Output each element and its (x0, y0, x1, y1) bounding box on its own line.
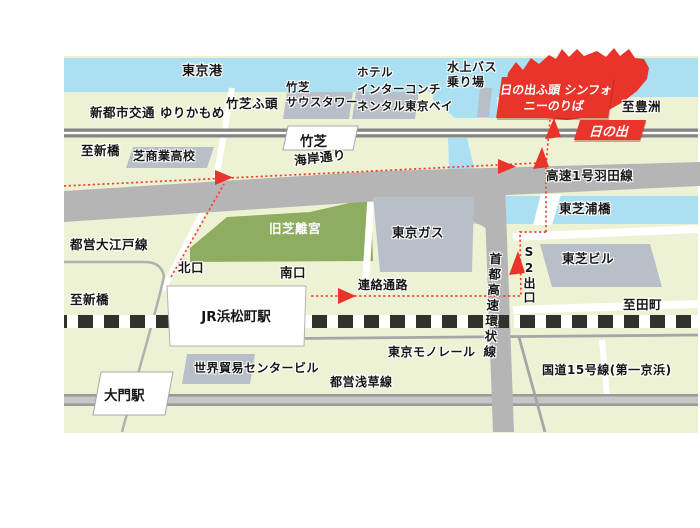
north-exit-label: 北口 (178, 260, 204, 275)
to-shimbashi-south-label: 至新橋 (70, 292, 109, 307)
jr-railway (64, 315, 698, 328)
tokyo-gas-label: 東京ガス (392, 225, 444, 240)
tokyo-bay-label: 東京港 (182, 64, 223, 79)
route15-label: 国道15号線(第一京浜) (542, 363, 672, 378)
shibaura-bridge-label: 東芝浦橋 (559, 201, 611, 216)
water-bus-stop-label: 水上バス 乗り場 (447, 60, 497, 90)
world-trade-center-label: 世界貿易センタービル (194, 361, 319, 376)
haneda-expressway-label: 高速1号羽田線 (546, 168, 633, 183)
to-shimbashi-north-label: 至新橋 (81, 143, 120, 158)
takeshiba-south-tower-label: 竹芝 サウスタワー (286, 80, 358, 110)
toshiba-building-label: 東芝ビル (562, 251, 614, 266)
shiba-commercial-hs-label: 芝商業高校 (133, 149, 196, 164)
takeshiba-station-label: 竹芝 (300, 130, 327, 150)
yurikamome-label: 新都市交通 ゆりかもめ (90, 105, 225, 120)
jr-hamamatsucho-label: JR浜松町駅 (167, 305, 305, 325)
tokyo-monorail-label: 東京モノレール (388, 345, 476, 360)
hinode-station-label: 日の出 (574, 120, 646, 140)
south-exit-label: 南口 (280, 265, 306, 280)
kyu-shiba-rikyu-label: 旧芝離宮 (269, 221, 321, 236)
oedo-line-label: 都営大江戸線 (70, 237, 148, 252)
s2-exit-label: S2出口 (521, 245, 536, 315)
hotel-intercontinental-label: ホテル インターコンチ ネンタル東京ベイ (357, 64, 453, 115)
to-toyosu-label: 至豊洲 (622, 99, 661, 114)
asakusa-line-label: 都営浅草線 (330, 375, 393, 390)
daimon-station-label: 大門駅 (104, 384, 145, 404)
route-map: 東京港 新都市交通 ゆりかもめ 竹芝ふ頭 竹芝 サウスタワー ホテル インターコ… (0, 0, 700, 528)
hinode-pier-symphony-label: 日の出ふ頭 シンフォニーのりば (496, 77, 614, 118)
renraku-tsuro-label: 連絡通路 (358, 278, 408, 293)
to-tamachi-label: 至田町 (623, 297, 662, 312)
takeshiba-pier-label: 竹芝ふ頭 (226, 96, 278, 111)
